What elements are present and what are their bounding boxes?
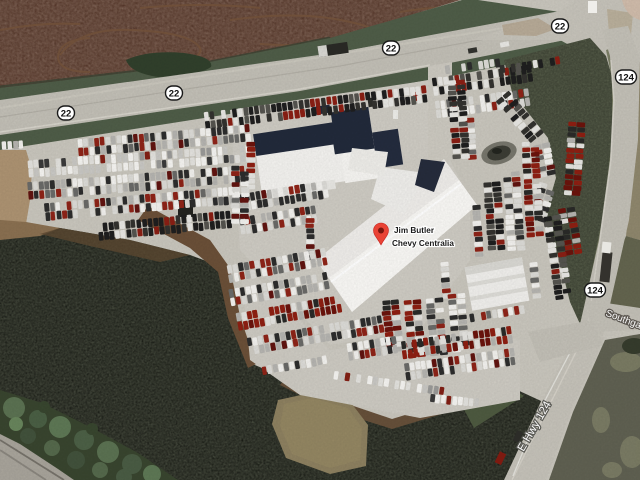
svg-text:Jim Butler: Jim Butler xyxy=(394,226,435,235)
svg-text:22: 22 xyxy=(169,89,180,100)
svg-text:22: 22 xyxy=(555,22,566,33)
svg-text:124: 124 xyxy=(587,286,604,297)
svg-text:22: 22 xyxy=(61,109,72,120)
svg-text:22: 22 xyxy=(386,44,397,55)
svg-text:Chevy Centralia: Chevy Centralia xyxy=(392,239,454,248)
svg-text:124: 124 xyxy=(618,73,635,84)
